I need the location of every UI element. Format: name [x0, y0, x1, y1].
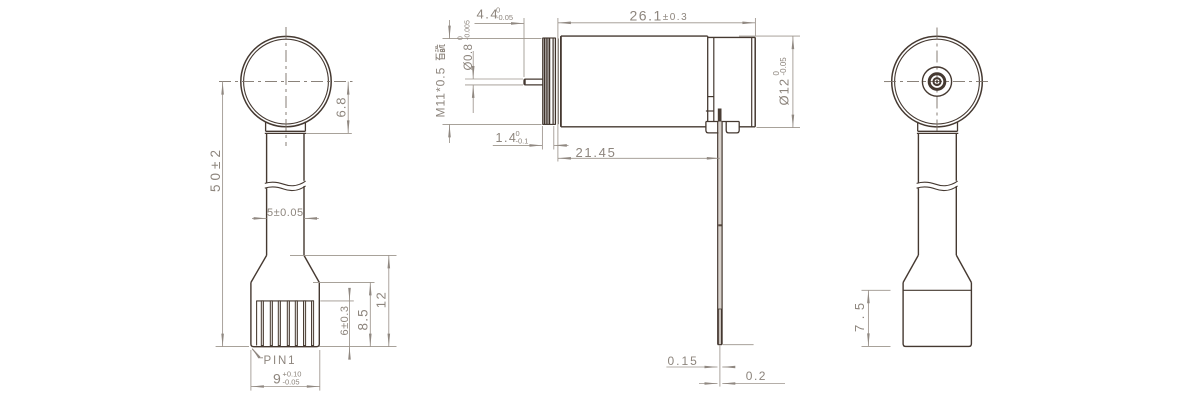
svg-text:-0.05: -0.05 [779, 57, 788, 76]
svg-text:0: 0 [457, 36, 464, 40]
svg-text:9: 9 [273, 371, 281, 387]
svg-text:Ø0.8: Ø0.8 [463, 44, 475, 71]
svg-text:7.5: 7.5 [852, 297, 867, 332]
svg-text:0.15: 0.15 [668, 354, 699, 368]
svg-text:6.8: 6.8 [334, 96, 349, 117]
svg-text:5±0.05: 5±0.05 [267, 207, 304, 219]
svg-text:-0.1: -0.1 [516, 137, 529, 146]
svg-text:0.2: 0.2 [746, 369, 767, 383]
svg-text:21.45: 21.45 [576, 145, 617, 160]
svg-text:50±2: 50±2 [208, 146, 223, 192]
svg-text:PIN1: PIN1 [264, 355, 297, 367]
svg-text:6±0.3: 6±0.3 [339, 306, 351, 336]
svg-text:-0.005: -0.005 [464, 20, 471, 40]
svg-text:-0.05: -0.05 [283, 378, 300, 387]
svg-text:8.5: 8.5 [356, 308, 371, 330]
svg-text:M11*0.5: M11*0.5 [434, 67, 448, 118]
svg-text:1.4: 1.4 [496, 131, 518, 145]
svg-text:-0.05: -0.05 [496, 13, 513, 22]
svg-text:12: 12 [374, 291, 389, 308]
svg-text:Ø12: Ø12 [777, 78, 792, 106]
